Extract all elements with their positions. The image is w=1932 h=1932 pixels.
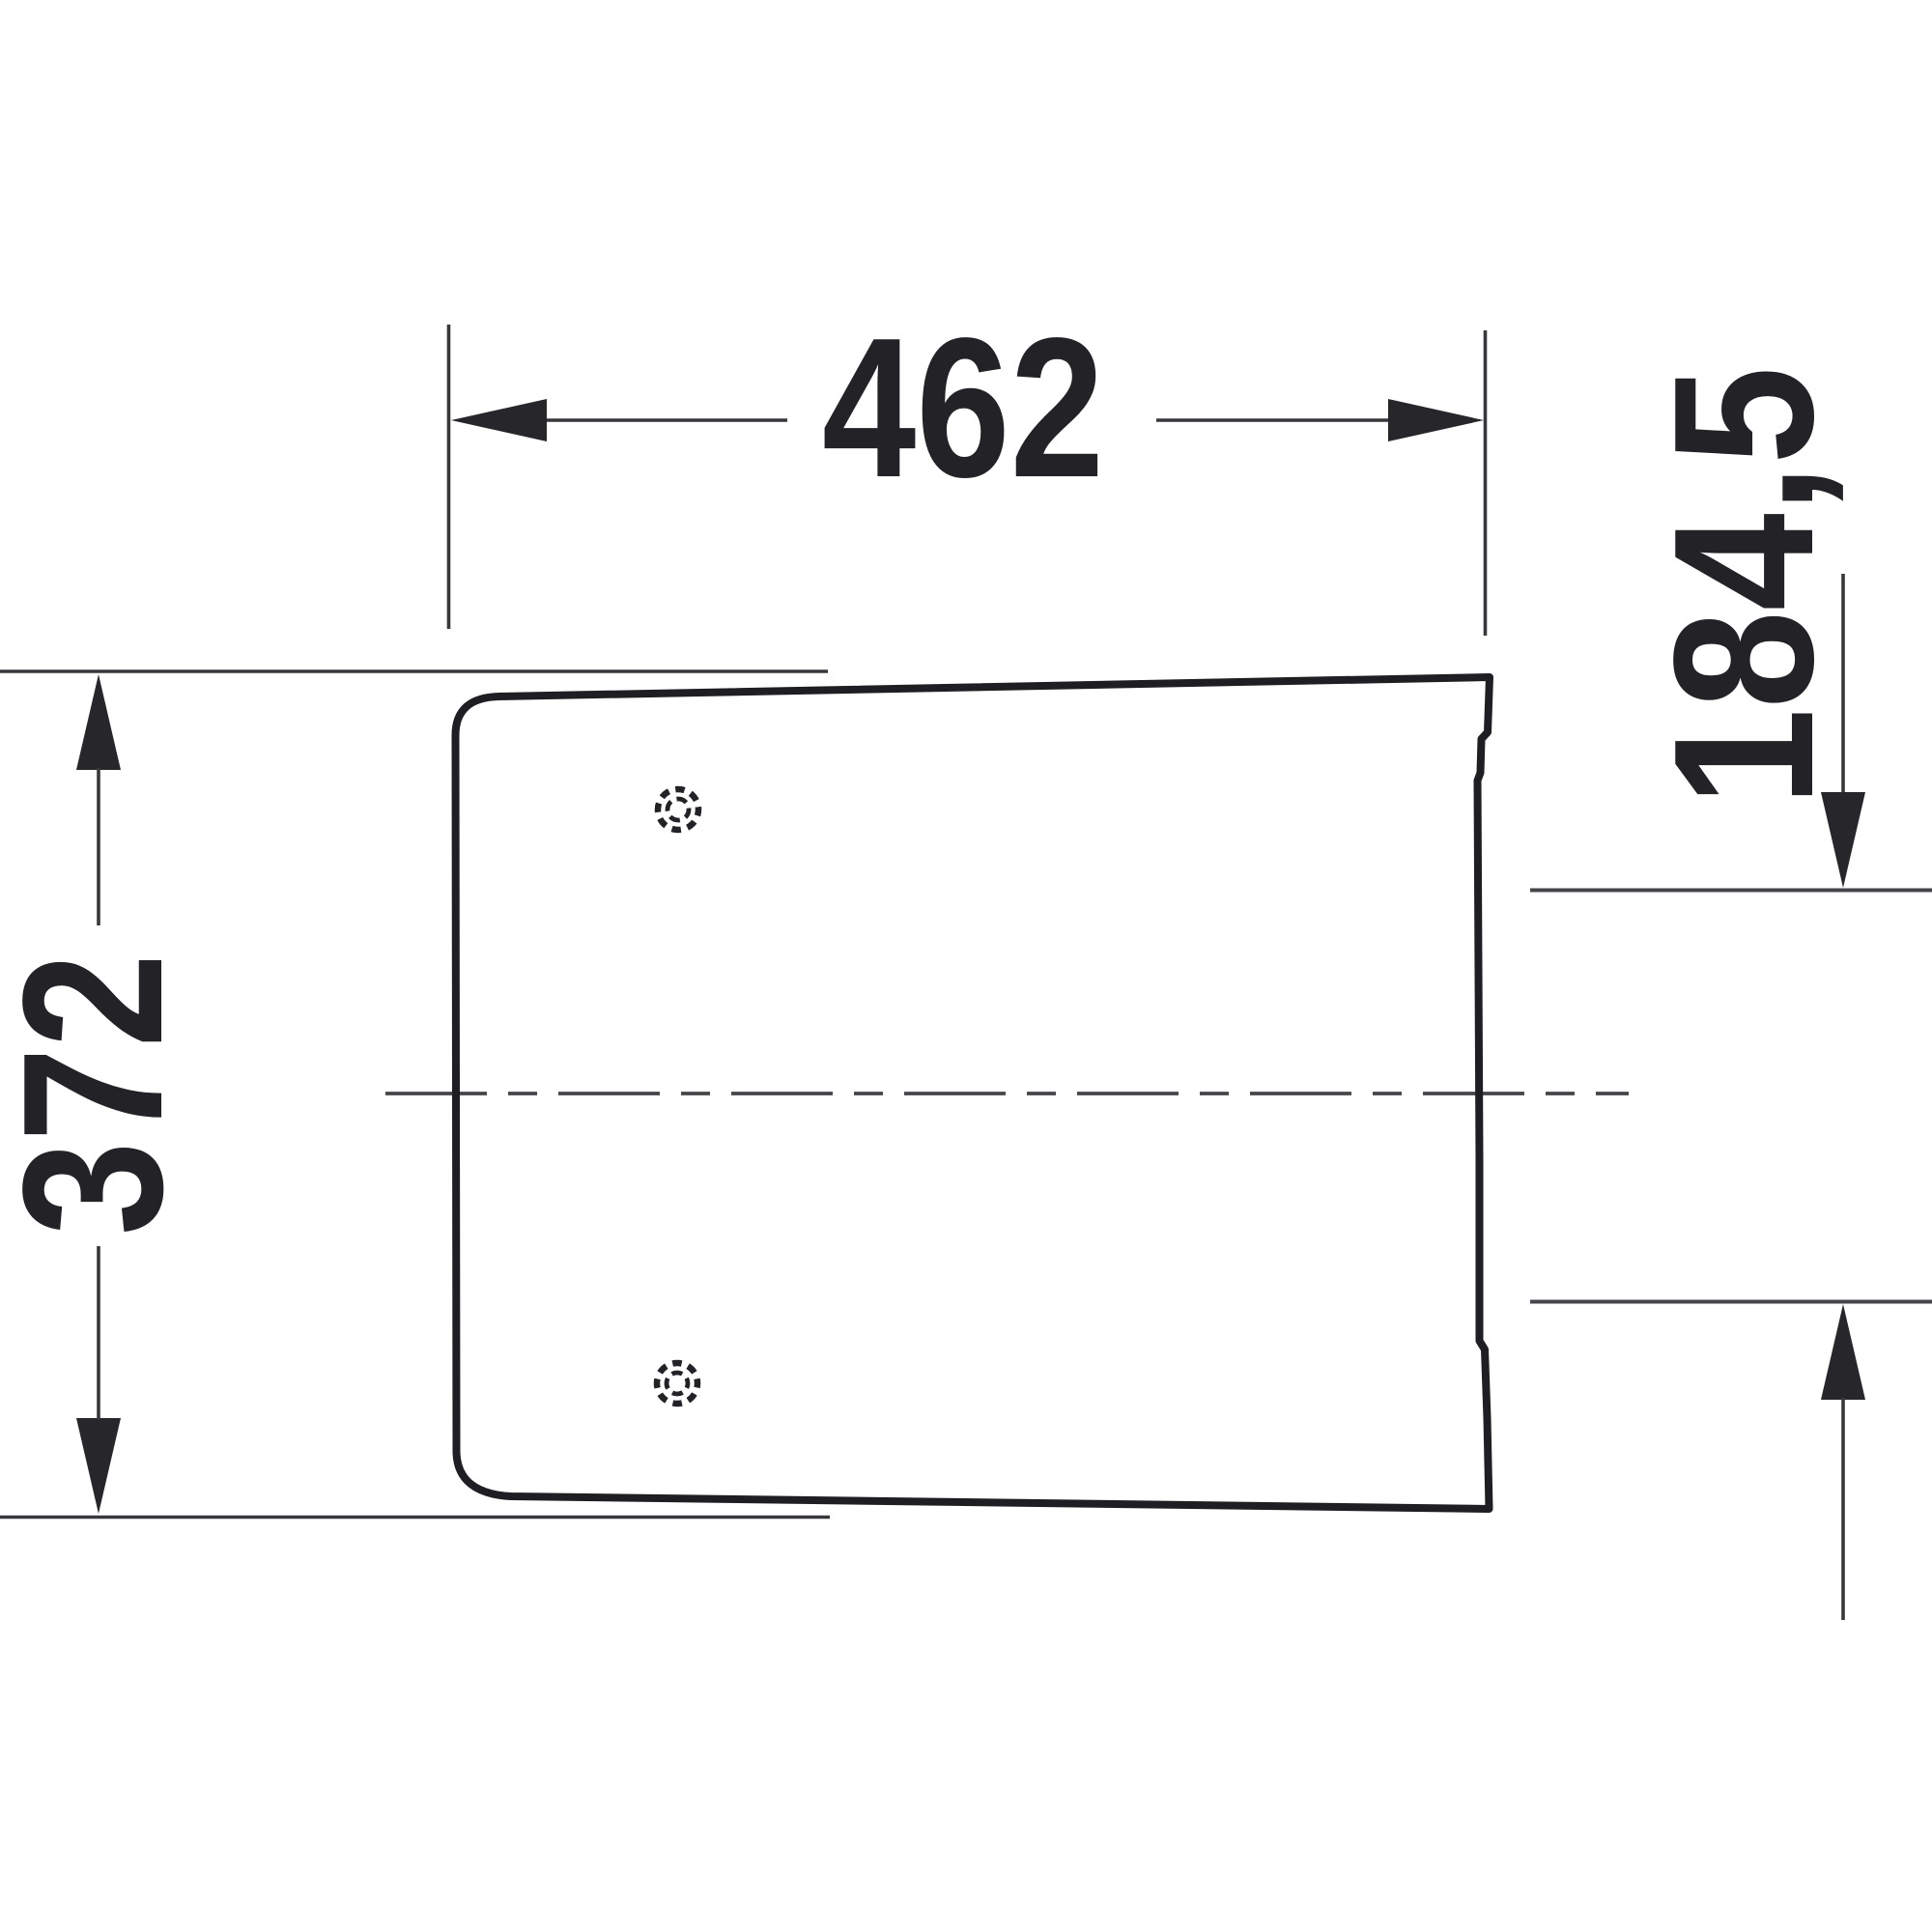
svg-text:462: 462 (822, 297, 1104, 520)
svg-text:372: 372 (0, 953, 204, 1236)
svg-text:184,5: 184,5 (1633, 366, 1855, 806)
